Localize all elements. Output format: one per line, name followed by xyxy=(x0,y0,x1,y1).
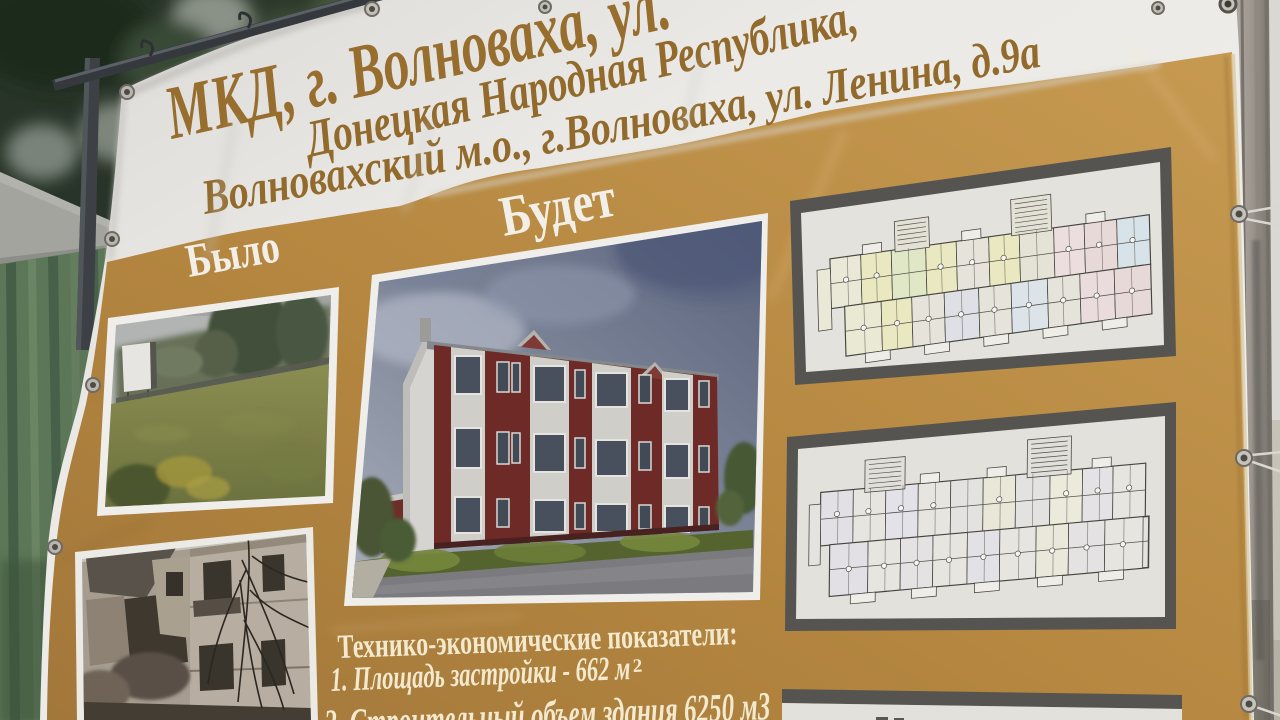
svg-text:2: 2 xyxy=(632,656,642,677)
